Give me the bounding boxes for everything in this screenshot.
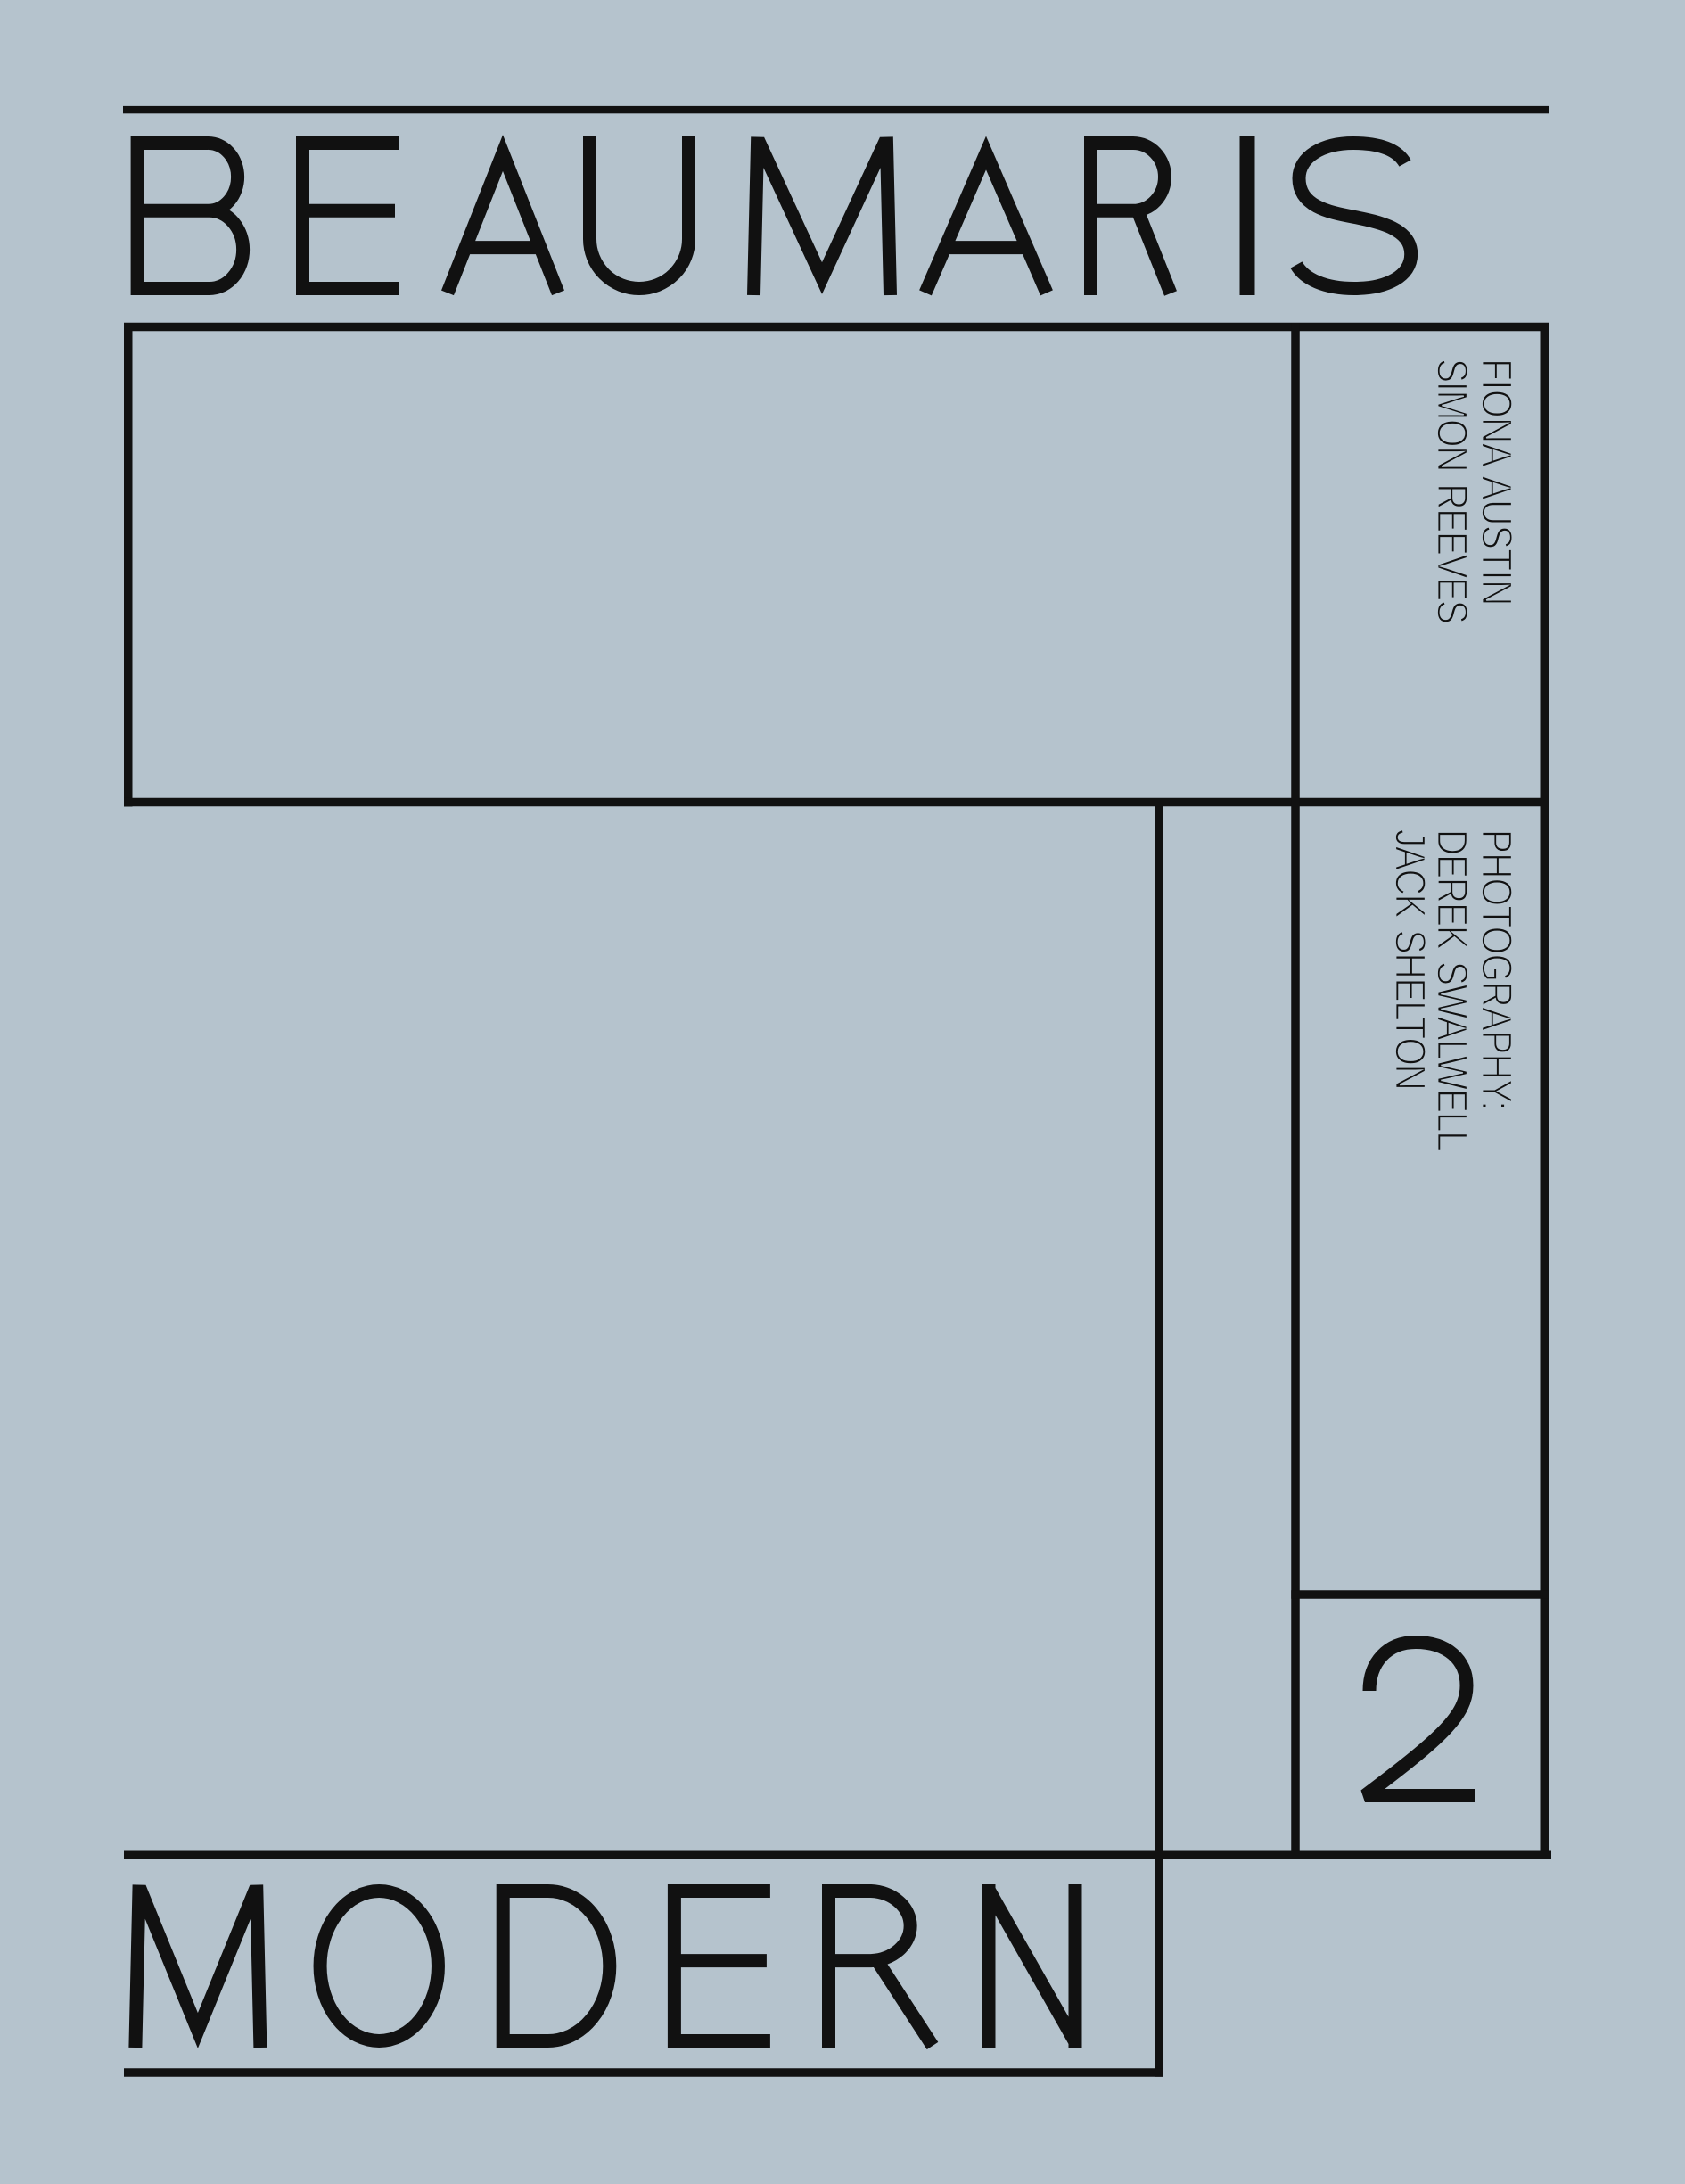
svg-text:JACK SHELTON: JACK SHELTON (1386, 829, 1434, 1090)
svg-text:FIONA AUSTIN: FIONA AUSTIN (1473, 359, 1520, 606)
svg-text:DEREK SWALWELL: DEREK SWALWELL (1428, 829, 1475, 1150)
svg-text:SIMON REEVES: SIMON REEVES (1428, 359, 1475, 622)
svg-text:PHOTOGRAPHY:: PHOTOGRAPHY: (1473, 829, 1520, 1110)
